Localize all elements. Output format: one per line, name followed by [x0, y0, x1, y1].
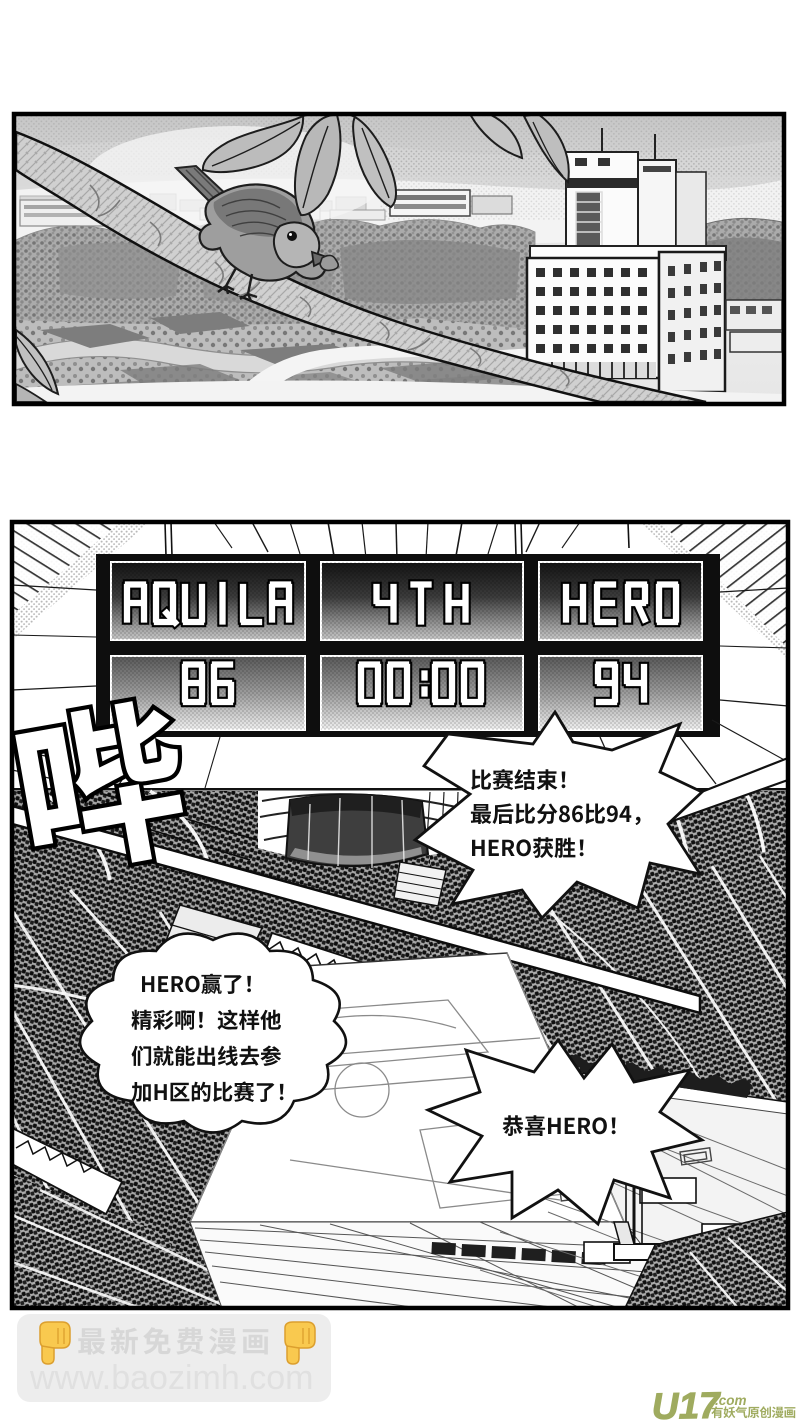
svg-text:.com: .com: [715, 1393, 747, 1408]
svg-text:U17: U17: [651, 1385, 722, 1422]
svg-text:www.baozimh.com: www.baozimh.com: [29, 1359, 313, 1397]
